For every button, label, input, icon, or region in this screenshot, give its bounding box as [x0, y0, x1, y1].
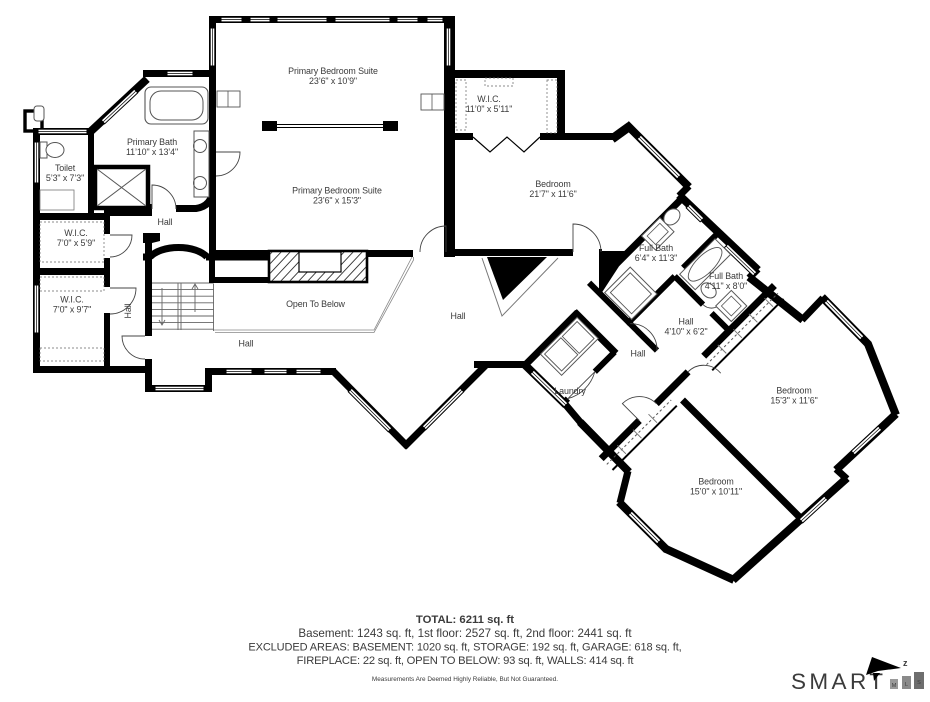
svg-text:Toilet: Toilet — [55, 163, 76, 173]
svg-text:Bedroom: Bedroom — [698, 477, 733, 487]
svg-text:Hall: Hall — [451, 311, 466, 321]
svg-text:4’11" x 8’0": 4’11" x 8’0" — [705, 281, 747, 291]
svg-text:Hall: Hall — [158, 217, 173, 227]
svg-text:Primary Bedroom Suite: Primary Bedroom Suite — [288, 66, 378, 76]
svg-text:Laundry: Laundry — [554, 386, 586, 396]
svg-text:Open To Below: Open To Below — [286, 299, 345, 309]
svg-text:TOTAL: 6211 sq. ft: TOTAL: 6211 sq. ft — [416, 614, 514, 626]
svg-text:Primary Bedroom Suite: Primary Bedroom Suite — [292, 186, 382, 196]
svg-text:23’6" x 10’9": 23’6" x 10’9" — [309, 76, 357, 86]
svg-text:Measurements Are Deemed Highly: Measurements Are Deemed Highly Reliable,… — [372, 676, 558, 683]
svg-text:4’10" x 6’2": 4’10" x 6’2" — [664, 327, 707, 337]
svg-text:Bedroom: Bedroom — [776, 386, 811, 396]
svg-text:Primary Bath: Primary Bath — [127, 137, 177, 147]
svg-text:23’6" x 15’3": 23’6" x 15’3" — [313, 196, 361, 206]
svg-text:21’7" x 11’6": 21’7" x 11’6" — [529, 189, 576, 199]
svg-text:Hall: Hall — [679, 317, 694, 327]
svg-text:Hall: Hall — [631, 349, 646, 359]
svg-text:M: M — [892, 683, 897, 689]
svg-text:W.I.C.: W.I.C. — [60, 295, 84, 305]
svg-text:7’0" x 9’7": 7’0" x 9’7" — [53, 305, 91, 315]
svg-text:W.I.C.: W.I.C. — [477, 94, 501, 104]
svg-text:6’4" x 11’3": 6’4" x 11’3" — [635, 253, 677, 263]
svg-text:Hall: Hall — [123, 303, 133, 318]
svg-text:W.I.C.: W.I.C. — [64, 228, 88, 238]
svg-text:7’0" x 5’9": 7’0" x 5’9" — [57, 238, 95, 248]
svg-text:5’3" x 7’3": 5’3" x 7’3" — [46, 173, 84, 183]
svg-text:15’3" x 11’6": 15’3" x 11’6" — [770, 396, 817, 406]
svg-text:11’10" x 13’4": 11’10" x 13’4" — [126, 147, 178, 157]
svg-text:11’0" x 5’11": 11’0" x 5’11" — [466, 104, 513, 114]
svg-text:EXCLUDED AREAS: BASEMENT: 1020: EXCLUDED AREAS: BASEMENT: 1020 sq. ft, S… — [248, 642, 681, 654]
svg-text:Bedroom: Bedroom — [535, 179, 570, 189]
svg-text:Basement: 1243 sq. ft, 1st flo: Basement: 1243 sq. ft, 1st floor: 2527 s… — [298, 627, 632, 640]
svg-text:Hall: Hall — [239, 339, 254, 349]
svg-text:15’0" x 10’11": 15’0" x 10’11" — [690, 487, 742, 497]
svg-text:z: z — [903, 658, 908, 668]
svg-text:FIREPLACE: 22 sq. ft, OPEN TO: FIREPLACE: 22 sq. ft, OPEN TO BELOW: 93 … — [297, 655, 635, 667]
svg-text:L: L — [905, 682, 908, 688]
svg-text:S: S — [917, 680, 921, 686]
svg-text:Full Bath: Full Bath — [639, 243, 673, 253]
svg-text:Full Bath: Full Bath — [709, 271, 743, 281]
